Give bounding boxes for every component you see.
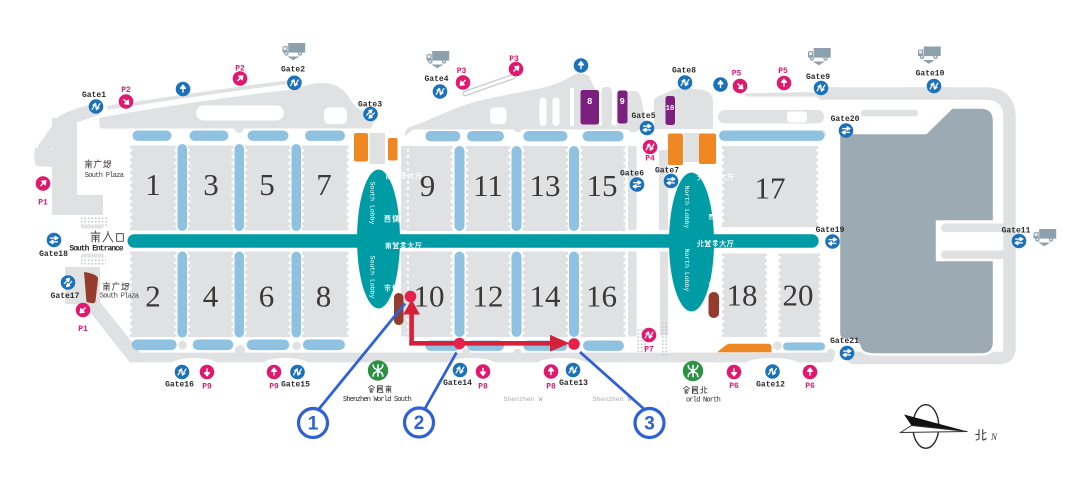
svg-text:Gate3: Gate3 bbox=[358, 101, 382, 110]
svg-text:Gate10: Gate10 bbox=[916, 70, 945, 79]
svg-text:Gate2: Gate2 bbox=[281, 66, 305, 75]
svg-text:P9: P9 bbox=[269, 383, 279, 392]
svg-text:P3: P3 bbox=[509, 55, 519, 64]
svg-text:14: 14 bbox=[530, 279, 562, 314]
svg-text:P7: P7 bbox=[644, 346, 654, 355]
svg-text:P2: P2 bbox=[121, 86, 131, 95]
svg-text:Gate16: Gate16 bbox=[165, 381, 194, 390]
svg-text:Shenzhen W: Shenzhen W bbox=[592, 396, 631, 403]
svg-text:1: 1 bbox=[308, 414, 319, 435]
svg-text:Gate18: Gate18 bbox=[39, 250, 68, 259]
svg-text:6: 6 bbox=[259, 279, 275, 314]
svg-text:Gate19: Gate19 bbox=[816, 226, 845, 235]
svg-text:orld North: orld North bbox=[686, 397, 721, 405]
svg-text:P1: P1 bbox=[78, 325, 88, 334]
svg-text:Gate5: Gate5 bbox=[631, 112, 655, 121]
svg-text:2: 2 bbox=[145, 279, 161, 314]
svg-text:9: 9 bbox=[620, 97, 625, 107]
svg-text:North Lobby: North Lobby bbox=[683, 249, 690, 292]
svg-text:P3: P3 bbox=[457, 67, 467, 76]
svg-text:18: 18 bbox=[727, 278, 758, 313]
svg-text:20: 20 bbox=[783, 278, 814, 313]
svg-text:Gate15: Gate15 bbox=[281, 381, 310, 390]
svg-text:South Entrance: South Entrance bbox=[69, 245, 123, 254]
svg-text:P1: P1 bbox=[38, 199, 48, 208]
svg-text:17: 17 bbox=[755, 171, 786, 206]
svg-text:South Lobby: South Lobby bbox=[369, 182, 376, 225]
svg-text:8: 8 bbox=[316, 279, 332, 314]
svg-text:10: 10 bbox=[666, 105, 674, 113]
svg-text:11: 11 bbox=[473, 168, 503, 203]
svg-text:P6: P6 bbox=[805, 382, 815, 391]
svg-text:Gate7: Gate7 bbox=[655, 167, 679, 176]
svg-text:12: 12 bbox=[473, 279, 504, 314]
svg-text:South Lobby: South Lobby bbox=[369, 256, 376, 299]
svg-text:P4: P4 bbox=[645, 155, 655, 164]
svg-text:Gate8: Gate8 bbox=[672, 67, 696, 76]
svg-text:Gate20: Gate20 bbox=[831, 115, 860, 124]
svg-text:Gate21: Gate21 bbox=[830, 337, 859, 346]
svg-text:P8: P8 bbox=[546, 383, 556, 392]
svg-text:South Plaza: South Plaza bbox=[85, 172, 124, 180]
svg-text:P8: P8 bbox=[478, 383, 488, 392]
svg-text:16: 16 bbox=[586, 279, 617, 314]
svg-text:Gate11: Gate11 bbox=[1002, 227, 1031, 236]
svg-text:1: 1 bbox=[145, 167, 161, 202]
svg-text:P5: P5 bbox=[778, 67, 788, 76]
svg-text:Gate12: Gate12 bbox=[756, 381, 785, 390]
svg-text:Gate14: Gate14 bbox=[443, 379, 472, 388]
svg-text:5: 5 bbox=[259, 167, 275, 202]
svg-text:Shenzhen World South: Shenzhen World South bbox=[343, 396, 412, 404]
svg-text:Gate1: Gate1 bbox=[82, 91, 106, 100]
svg-text:10: 10 bbox=[414, 279, 445, 314]
svg-text:4: 4 bbox=[203, 279, 219, 314]
svg-text:Gate17: Gate17 bbox=[51, 292, 80, 301]
svg-text:15: 15 bbox=[587, 168, 618, 203]
svg-text:South Plaza: South Plaza bbox=[100, 293, 139, 301]
svg-text:3: 3 bbox=[203, 167, 219, 202]
svg-text:Shenzhen W: Shenzhen W bbox=[503, 396, 542, 403]
svg-text:13: 13 bbox=[530, 168, 561, 203]
svg-text:7: 7 bbox=[316, 167, 332, 202]
svg-text:P9: P9 bbox=[202, 383, 212, 392]
svg-text:Gate13: Gate13 bbox=[559, 379, 588, 388]
svg-text:Gate4: Gate4 bbox=[424, 75, 448, 84]
svg-text:Gate9: Gate9 bbox=[806, 73, 830, 82]
svg-text:8: 8 bbox=[587, 97, 592, 107]
svg-text:P2: P2 bbox=[235, 65, 245, 74]
svg-text:P6: P6 bbox=[729, 382, 739, 391]
svg-text:North Lobby: North Lobby bbox=[683, 186, 690, 229]
svg-text:N: N bbox=[990, 432, 998, 442]
svg-text:2: 2 bbox=[414, 413, 425, 434]
svg-text:P5: P5 bbox=[732, 70, 742, 79]
svg-text:3: 3 bbox=[644, 414, 655, 435]
svg-text:Gate6: Gate6 bbox=[620, 170, 644, 179]
